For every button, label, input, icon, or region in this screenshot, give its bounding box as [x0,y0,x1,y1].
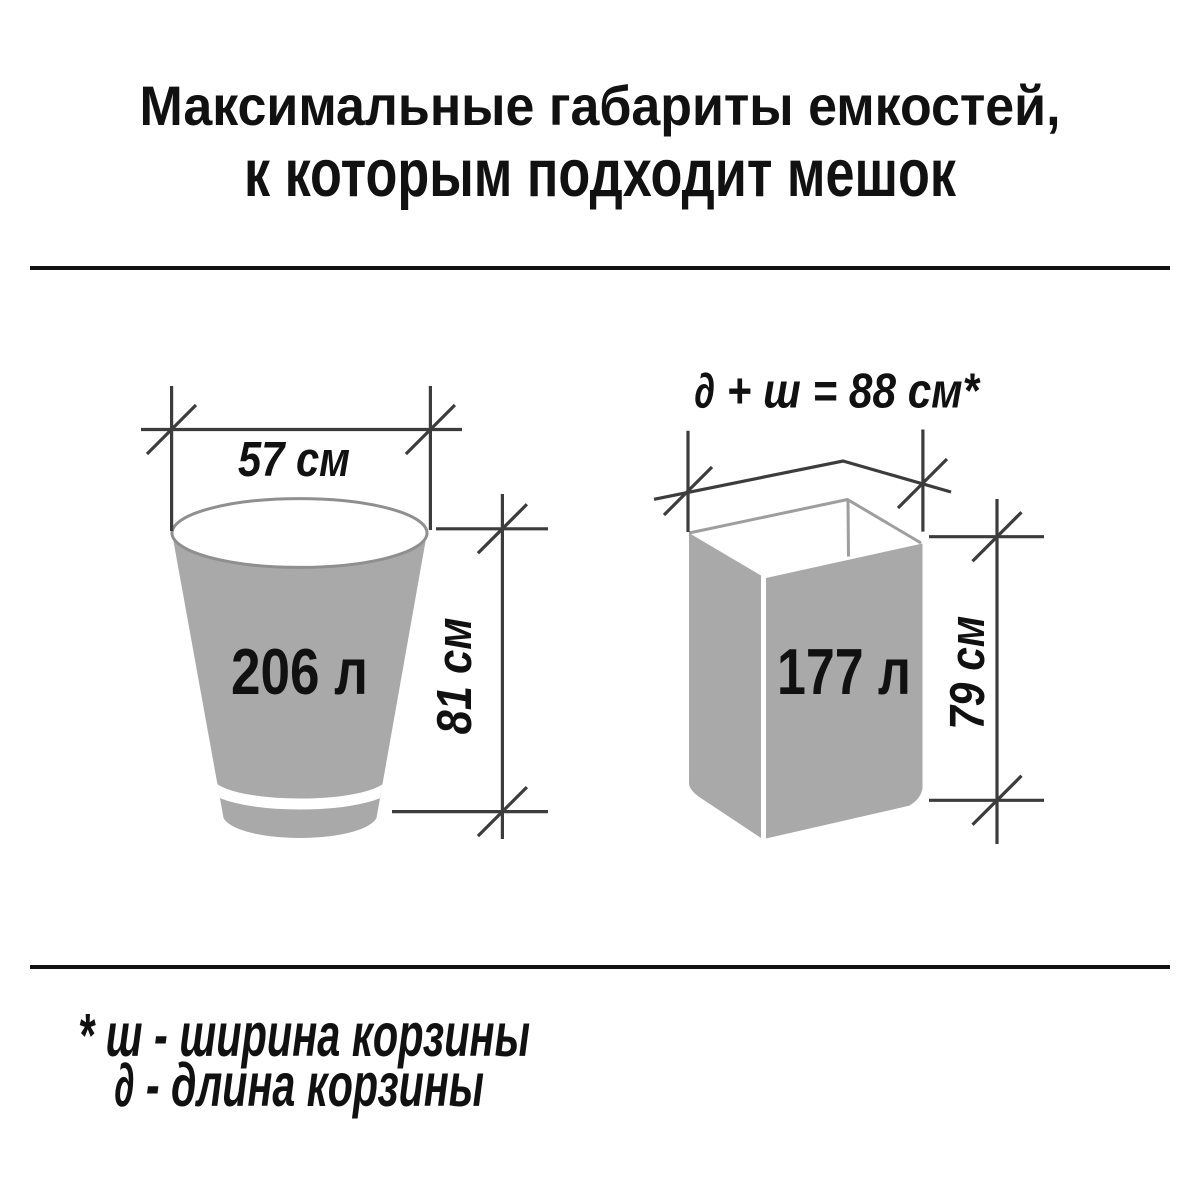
svg-text:81 см: 81 см [428,618,482,735]
svg-text:∂ - длина корзины: ∂ - длина корзины [114,1051,484,1119]
svg-text:206 л: 206 л [231,635,368,708]
svg-text:Максимальные габариты емкостей: Максимальные габариты емкостей, [140,74,1061,137]
svg-text:∂ + ш = 88 см*: ∂ + ш = 88 см* [694,365,981,419]
svg-text:177 л: 177 л [777,635,911,708]
svg-text:к которым подходит мешок: к которым подходит мешок [244,136,956,211]
svg-text:57 см: 57 см [238,433,350,487]
svg-text:79 см: 79 см [941,616,995,730]
